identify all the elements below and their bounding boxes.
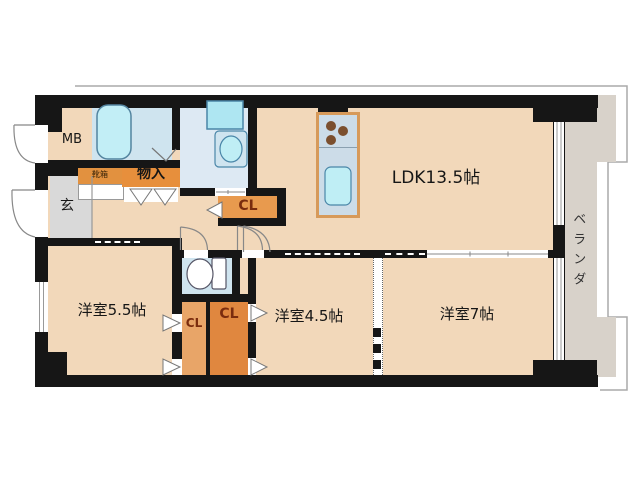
wall: [172, 294, 254, 302]
range-hood: [318, 98, 348, 112]
wall: [248, 98, 257, 192]
mb-door-opening: [35, 125, 48, 163]
shoe-cabinet-label: 靴箱: [78, 171, 122, 180]
floor-plan: MB 玄 物入 靴箱 CL CL CL LDK13.5帖 洋室5.5帖 洋室4.…: [0, 0, 640, 480]
shoe-cabinet-body: [78, 184, 124, 200]
partition-dash: [373, 344, 381, 353]
western-5-5-label: 洋室5.5帖: [52, 302, 172, 319]
wall: [248, 258, 256, 304]
storage-label: 物入: [122, 167, 180, 182]
kitchen-counter: [316, 112, 360, 218]
wall: [35, 375, 598, 387]
partition-dash: [373, 360, 381, 369]
wall-hatch: [95, 241, 140, 243]
partition-dash: [373, 328, 381, 337]
toilet-doorway: [184, 250, 208, 258]
closet-right-opening: [248, 358, 256, 375]
window-west: [35, 282, 48, 332]
washroom-sliding-door: [215, 188, 246, 196]
wall: [548, 250, 553, 258]
window-western-7: [554, 258, 564, 360]
wall: [218, 218, 286, 226]
toilet-floor: [182, 252, 232, 296]
kitchen-counter-divider: [319, 147, 357, 148]
hall-closet-label: CL: [218, 199, 278, 214]
washroom-floor: [180, 98, 250, 190]
closet-left-label: CL: [182, 316, 206, 331]
entrance-door-swing: [12, 190, 35, 237]
wall: [172, 98, 180, 150]
western-4-5-label: 洋室4.5帖: [249, 308, 369, 325]
ldk-label: LDK13.5帖: [356, 169, 516, 188]
wall: [35, 352, 67, 387]
storage-body: [124, 187, 178, 202]
wall: [35, 95, 598, 108]
movable-partition: [373, 258, 383, 375]
closet-left-opening: [172, 359, 182, 375]
entrance-label: 玄: [60, 199, 74, 214]
wall: [172, 246, 182, 314]
wall: [180, 188, 215, 196]
wall: [533, 360, 597, 387]
closet-left-floor: [182, 302, 206, 377]
wall: [248, 322, 256, 358]
wall-hatch: [285, 253, 360, 255]
closet-left-opening: [172, 314, 182, 332]
mb-door-swing: [14, 125, 35, 163]
wall: [246, 188, 286, 196]
wall: [172, 332, 182, 359]
western-7-label: 洋室7帖: [407, 306, 527, 323]
window-ldk: [554, 122, 564, 225]
wall: [533, 108, 597, 122]
ldk-glass-slider-opening: [427, 250, 548, 258]
western-4-5-doorway: [242, 250, 264, 258]
closet-right-label: CL: [210, 306, 248, 324]
wall: [48, 160, 78, 176]
entrance-door-opening: [35, 190, 48, 237]
wall-hatch: [385, 253, 425, 255]
mb-label: MB: [50, 133, 94, 147]
veranda-label: ベランダ: [570, 212, 584, 292]
